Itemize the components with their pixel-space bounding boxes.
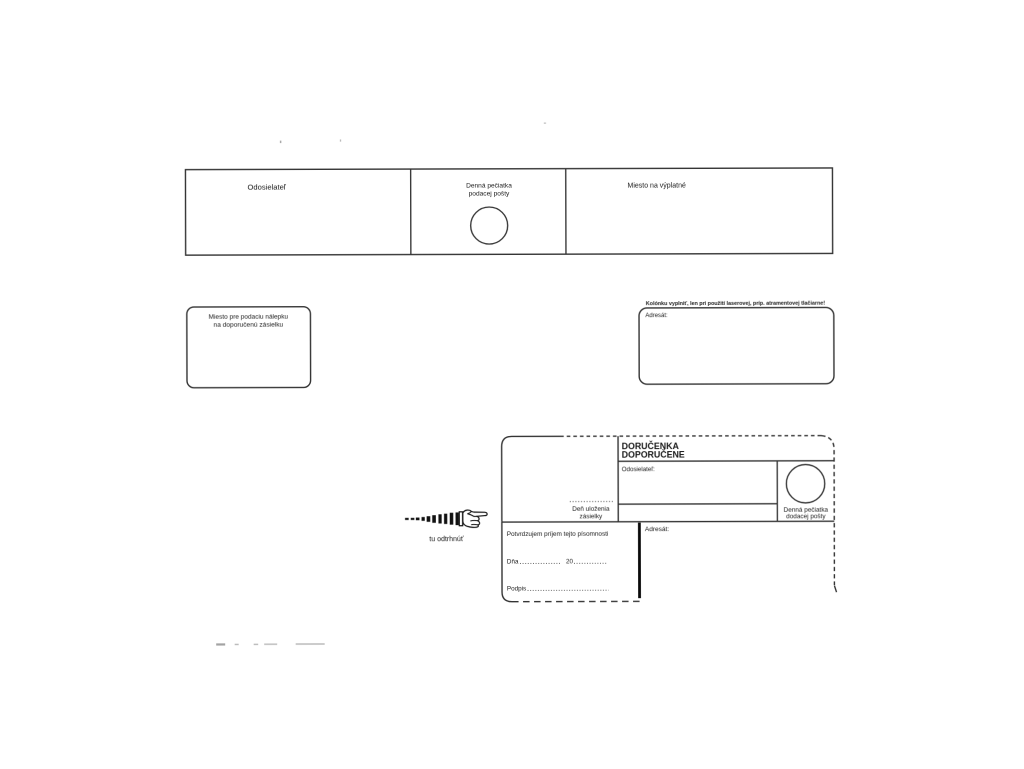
svg-text:Adresát:: Adresát:: [645, 526, 669, 533]
svg-text:Miesto na výplatné: Miesto na výplatné: [627, 182, 685, 189]
svg-text:Deň uloženia: Deň uloženia: [572, 506, 610, 513]
svg-text:zásielky: zásielky: [579, 513, 603, 520]
svg-text:Miesto pre podaciu nálepku: Miesto pre podaciu nálepku: [209, 314, 289, 321]
svg-text:Odosielateľ:: Odosielateľ:: [622, 466, 655, 473]
svg-text:dodacej pošty: dodacej pošty: [786, 513, 826, 520]
svg-text:na doporučenú zásielku: na doporučenú zásielku: [214, 321, 284, 328]
svg-text:Adresát:: Adresát:: [645, 313, 668, 319]
svg-text:tu odtrhnúť: tu odtrhnúť: [429, 536, 464, 543]
svg-text:Podpis: Podpis: [507, 585, 526, 592]
svg-text:podacej pošty: podacej pošty: [469, 191, 510, 198]
svg-text:Dňa: Dňa: [507, 559, 519, 566]
svg-text:Denná pečiatka: Denná pečiatka: [466, 182, 512, 189]
svg-text:Odosielateľ: Odosielateľ: [247, 182, 286, 191]
svg-text:Potvrdzujem príjem tejto písom: Potvrdzujem príjem tejto písomnosti: [507, 531, 609, 538]
svg-text:Kolónku vyplniť, len pri použi: Kolónku vyplniť, len pri použití laserov…: [646, 301, 826, 307]
svg-text:20: 20: [566, 558, 574, 565]
svg-text:DOPORUČENE: DOPORUČENE: [622, 449, 685, 460]
